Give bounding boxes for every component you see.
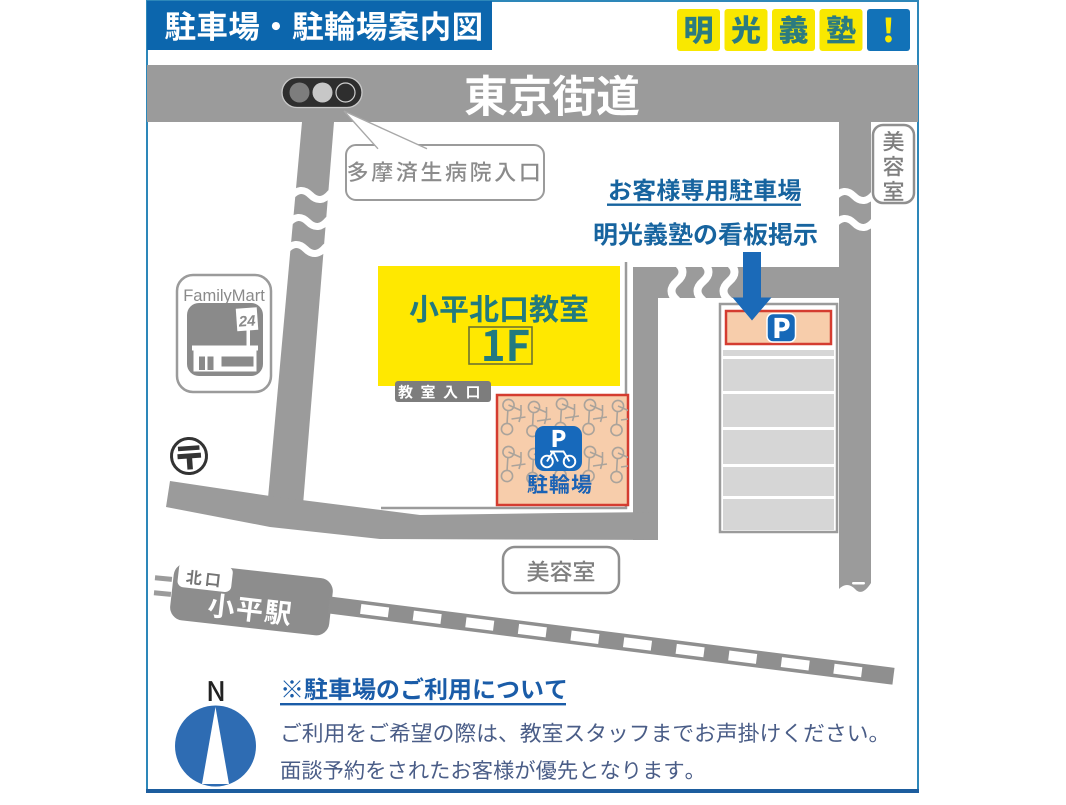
svg-text:24: 24 (237, 312, 256, 330)
svg-text:FamilyMart: FamilyMart (183, 287, 265, 305)
